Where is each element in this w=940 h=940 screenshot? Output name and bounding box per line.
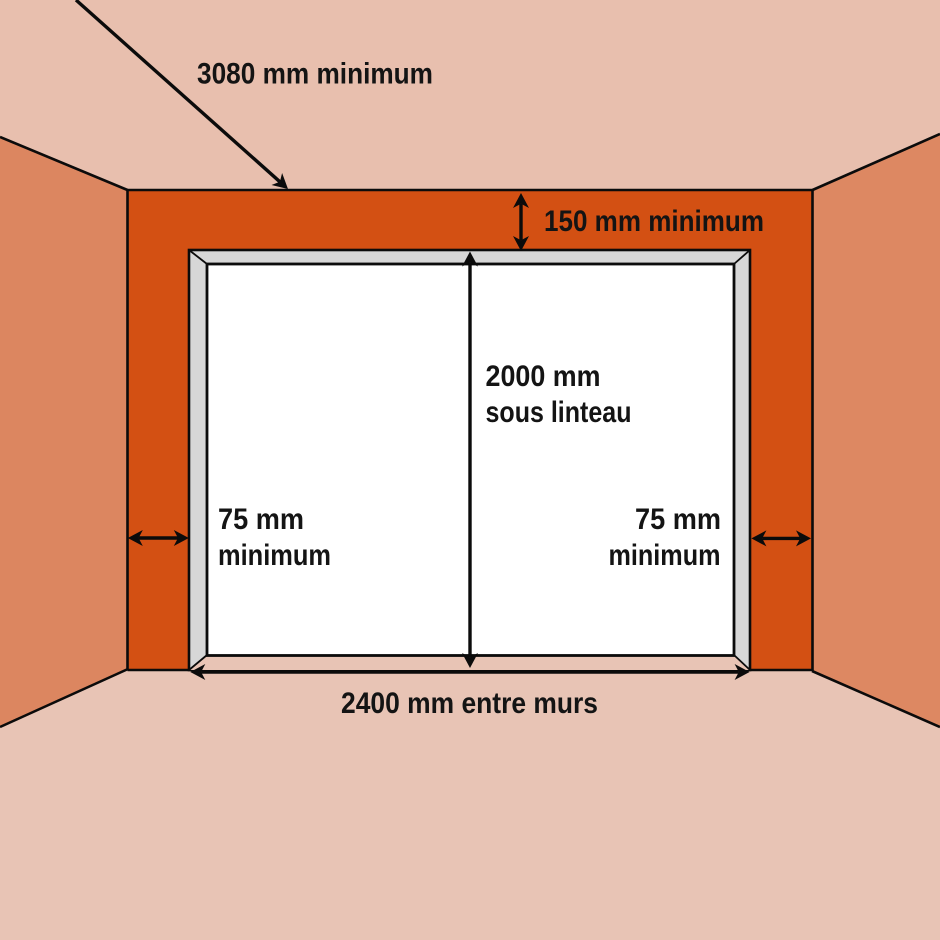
svg-text:2000 mm: 2000 mm (486, 360, 601, 393)
svg-text:75 mm: 75 mm (218, 503, 304, 536)
svg-text:minimum: minimum (218, 539, 331, 572)
svg-text:minimum: minimum (609, 539, 721, 572)
svg-text:150 mm minimum: 150 mm minimum (544, 205, 764, 238)
svg-text:2400 mm entre murs: 2400 mm entre murs (341, 687, 598, 720)
svg-text:75 mm: 75 mm (635, 503, 721, 536)
svg-text:3080 mm minimum: 3080 mm minimum (197, 58, 433, 91)
svg-text:sous linteau: sous linteau (486, 396, 632, 429)
